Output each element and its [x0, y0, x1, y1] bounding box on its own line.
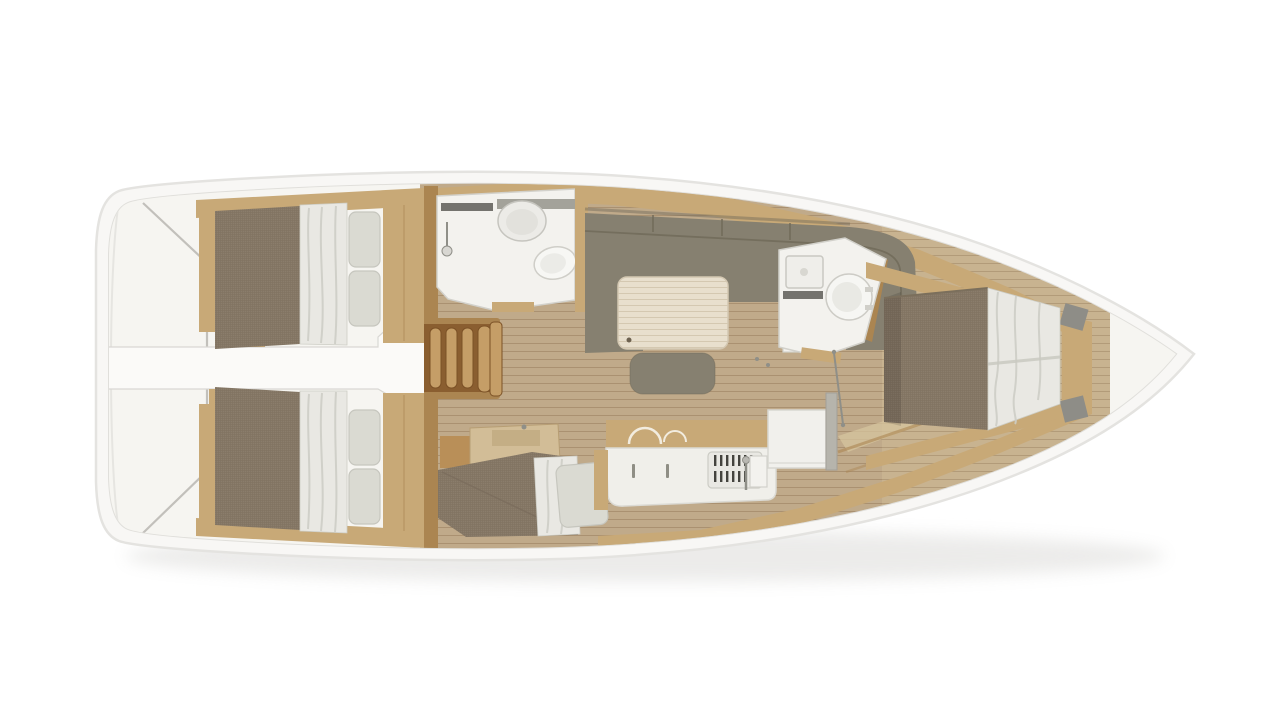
- aft-stbd-locker-strip: [199, 404, 215, 520]
- aft-stbd-pillow-2: [349, 469, 380, 524]
- galley-faucet-head: [743, 457, 750, 464]
- galley-lower-module: [750, 456, 767, 487]
- salon-table-pedestal-pin: [627, 338, 632, 343]
- aft-cabin-starboard: Aft double cabin (starboard): [196, 387, 438, 548]
- mid-berth-faucet: [522, 425, 527, 430]
- mid-berth-foot-board: [594, 450, 608, 510]
- floorplan-canvas: sailing-yacht-monohull Stern swim platfo…: [0, 0, 1272, 716]
- forward-grab-pole-base: [841, 423, 845, 427]
- galley-sink-slit-1: [632, 464, 635, 478]
- salon-floor-latch-1: [755, 357, 759, 361]
- aft-head-shower-head: [442, 246, 452, 256]
- mid-berth-desk-recess: [492, 430, 540, 446]
- companionway-stairs: Companionway stairs: [424, 318, 502, 399]
- aft-port-locker-strip: [199, 216, 215, 332]
- forward-head-vent-slot: [783, 291, 823, 299]
- aft-head-vent-slot: [441, 203, 493, 211]
- stairs-tread-2: [446, 328, 457, 388]
- aft-port-pillow-2: [349, 271, 380, 326]
- aft-cabin-port: Aft double cabin (port): [196, 186, 438, 349]
- aft-stbd-duvet: [300, 391, 347, 533]
- galley-fridge: [768, 410, 826, 468]
- yacht-floorplan-render: sailing-yacht-monohull Stern swim platfo…: [0, 0, 1272, 716]
- stairs-tread-3: [462, 328, 473, 388]
- salon-floor-latch-2: [766, 363, 770, 367]
- aft-stbd-pillow-1: [349, 410, 380, 465]
- aft-head-door-sill: [492, 302, 534, 312]
- stairs-tread-1: [430, 328, 441, 388]
- aft-head: Aft head with shower: [437, 186, 588, 312]
- aft-stbd-mattress: [215, 387, 300, 530]
- forward-head-sink-drain: [800, 268, 808, 276]
- aft-stbd-bulkhead: [424, 390, 438, 548]
- salon-table: [618, 277, 728, 349]
- mid-berth-vanity-block: [440, 436, 470, 468]
- forward-bed-head-cap: [1062, 316, 1092, 408]
- forward-grab-pole-top: [832, 350, 836, 354]
- aft-port-duvet: [300, 203, 347, 345]
- galley-sink-slit-2: [666, 464, 669, 478]
- salon-ottoman: [630, 353, 715, 394]
- aft-port-pillow-1: [349, 212, 380, 267]
- forward-head-toilet-bowl: [832, 282, 862, 312]
- forward-bed-foot-shade: [884, 292, 901, 426]
- forward-head-toilet-hinge-2: [865, 305, 873, 310]
- galley-cabinet-band: [606, 420, 770, 448]
- stairs-tread-4: [478, 326, 491, 392]
- forward-head-toilet-hinge-1: [865, 287, 873, 292]
- galley-pillar: [826, 393, 837, 470]
- aft-head-sink-bowl: [506, 209, 538, 235]
- stairs-top-step: [490, 322, 502, 396]
- aft-port-mattress: [215, 206, 300, 349]
- interior: Stern swim platform and transom walkway …: [90, 160, 1200, 560]
